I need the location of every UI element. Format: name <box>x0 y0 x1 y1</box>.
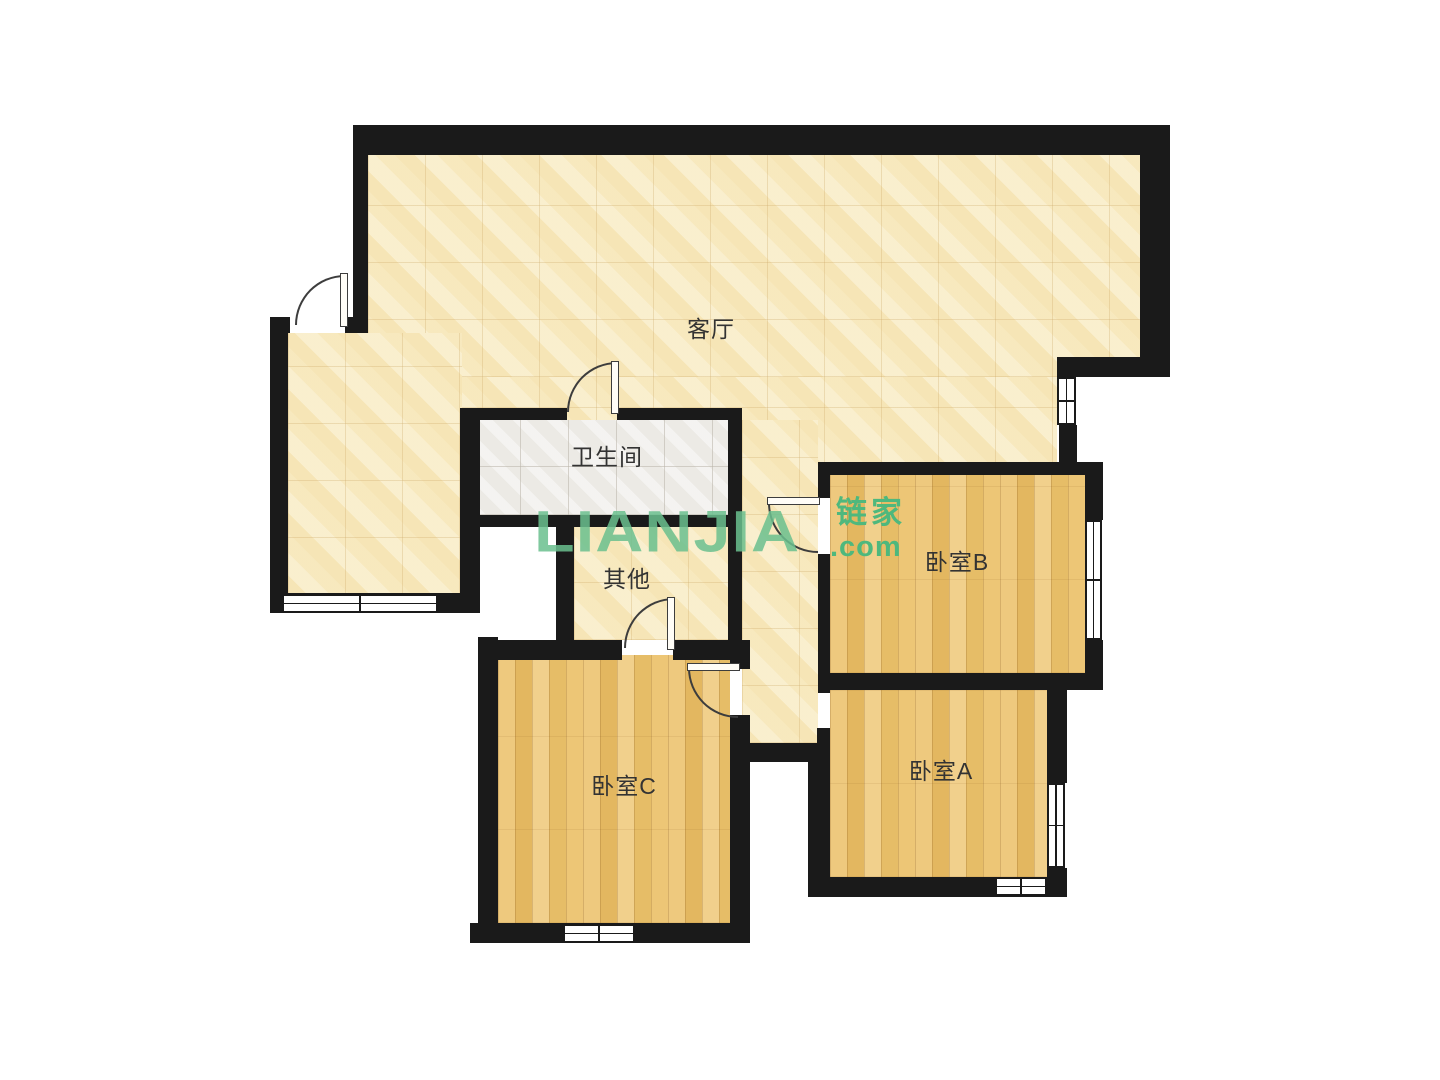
wall <box>1085 640 1103 690</box>
wall <box>345 317 368 333</box>
window-mullion <box>359 596 361 611</box>
room-label-bathroom: 卫生间 <box>571 438 643 472</box>
bedroom-a-side-window-icon <box>1047 783 1065 868</box>
wall <box>353 125 368 333</box>
bedroom-b-window-icon <box>1085 520 1102 640</box>
wall <box>673 640 750 660</box>
floor-living <box>742 420 818 743</box>
wall <box>460 408 567 420</box>
window-mullion <box>1020 879 1022 894</box>
wall <box>1047 868 1067 897</box>
entry-window-icon <box>282 594 438 613</box>
wall <box>617 408 742 420</box>
lianjia-watermark-text: LIANJIA <box>534 497 800 565</box>
wall <box>1059 425 1077 465</box>
wall <box>1085 462 1103 520</box>
bedroom-c-door-leaf-icon <box>687 663 740 671</box>
bedroom-a-bottom-window-icon <box>995 877 1047 896</box>
room-label-other: 其他 <box>603 560 651 594</box>
room-label-living: 客厅 <box>687 310 735 344</box>
floor-plan: LIANJIA 链家 .com 客厅卫生间其他卧室B卧室C卧室A <box>0 0 1440 1080</box>
bedroom-c-window-icon <box>563 924 635 943</box>
floor-living <box>288 333 462 595</box>
wall <box>1047 690 1067 783</box>
floor-living <box>368 155 1152 377</box>
wall <box>270 317 288 613</box>
window-mullion <box>1059 400 1074 402</box>
room-label-bedroom-c: 卧室C <box>591 767 657 801</box>
window-mullion <box>598 926 600 941</box>
wall <box>818 462 1103 475</box>
bathroom-door-leaf-icon <box>611 361 619 414</box>
wall <box>478 640 622 660</box>
window-mullion <box>1049 825 1063 827</box>
entry-door-swing-icon <box>295 275 345 325</box>
wall <box>1057 357 1170 377</box>
wall <box>460 408 480 613</box>
entry-door-leaf-icon <box>340 273 348 327</box>
living-right-window-icon <box>1057 377 1076 425</box>
wall <box>1140 125 1170 377</box>
wall <box>478 637 498 943</box>
lianjia-watermark-com: .com <box>830 533 902 562</box>
room-label-bedroom-a: 卧室A <box>909 752 973 786</box>
wall <box>818 673 1103 690</box>
room-label-bedroom-b: 卧室B <box>925 543 989 577</box>
window-mullion <box>1087 579 1100 581</box>
wall <box>808 743 830 897</box>
wall <box>353 125 1170 155</box>
lianjia-watermark-cjk: 链家 <box>836 497 906 528</box>
wall <box>817 728 830 744</box>
other-door-leaf-icon <box>667 597 675 650</box>
